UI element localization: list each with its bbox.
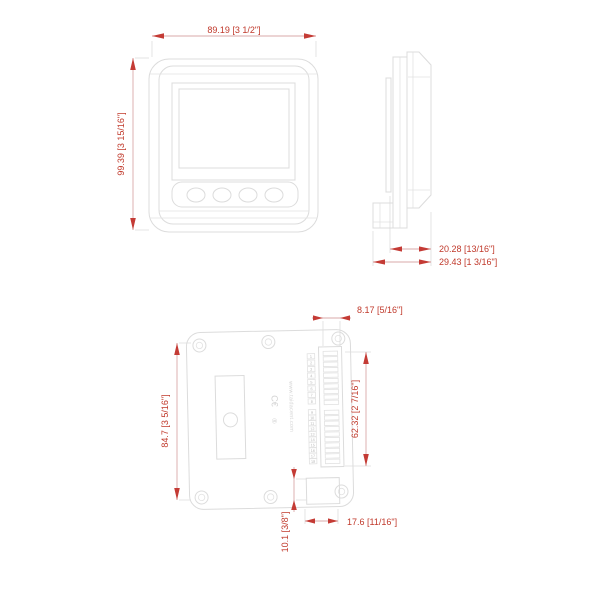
arrow-up-icon [363,352,369,364]
arrow-right-icon [419,246,431,251]
terminal-height-label: 62.32 [2 7/16"] [350,380,360,438]
side-depth-behind-label: 20.28 [13/16"] [439,244,495,254]
terminal-number: 10 [310,416,314,420]
dim-connector-height: 10.1 [3/8"] [280,467,307,552]
terminal-slot [325,432,340,437]
arrow-down-icon [291,469,297,479]
terminal-number: 8 [311,400,313,404]
terminal-slot [325,459,340,464]
arrow-up-icon [130,58,136,70]
terminal-slot [324,378,339,383]
technical-drawing-canvas: 89.19 [3 1/2"] 99.39 [3 15/16"] 20.28 [1… [0,0,600,600]
terminal-number: 16 [311,449,315,453]
drawing-svg: 89.19 [3 1/2"] 99.39 [3 15/16"] 20.28 [1… [0,0,600,600]
terminal-number: 14 [310,438,314,442]
terminal-block [318,346,344,466]
arrow-up-icon [291,500,297,510]
button-panel [172,182,298,207]
terminal-slot [324,389,339,394]
terminal-slot [324,410,339,415]
terminal-number: 4 [310,374,312,378]
terminal-number: 3 [310,368,312,372]
terminal-slot [324,373,339,378]
arrow-right-icon [313,315,323,320]
button-1 [187,188,205,202]
terminal-slot [325,448,340,453]
display-window-frame [172,83,295,180]
display-screen [179,89,289,168]
terminal-slot [323,357,338,362]
button-3 [239,188,257,202]
dim-back-height: 84.7 [3 5/16"] [160,343,191,500]
terminal-number: 18 [311,460,315,464]
front-bezel [159,66,309,224]
arrow-right-icon [304,33,316,39]
arrow-left-icon [305,518,315,523]
side-view [373,52,431,228]
arrow-down-icon [130,218,136,230]
terminal-slot [325,426,340,431]
arrow-left-icon [340,315,350,320]
front-width-label: 89.19 [3 1/2"] [207,25,260,35]
terminal-number: 11 [310,422,314,426]
terminal-slot [325,421,340,426]
dim-front-height: 99.39 [3 15/16"] [116,58,149,230]
terminal-slot [324,395,339,400]
dim-front-width: 89.19 [3 1/2"] [152,25,316,57]
button-4 [265,188,283,202]
terminal-slot [324,384,339,389]
dim-side-depth-behind: 20.28 [13/16"] [390,196,495,266]
terminal-number: 7 [311,393,313,397]
terminal-slot [325,443,340,448]
arrow-right-icon [419,259,431,264]
side-mounting-flange [386,78,391,192]
terminal-slot [325,454,340,459]
arrow-left-icon [152,33,164,39]
dim-terminal-height: 62.32 [2 7/16"] [345,352,371,466]
connector-height-label: 10.1 [3/8"] [280,512,290,553]
arrow-up-icon [174,343,180,355]
terminal-number: 12 [310,427,314,431]
arrow-down-icon [174,488,180,500]
terminal-number: 1 [310,355,312,359]
terminal-number: 15 [311,443,315,447]
terminal-slot [323,362,338,367]
terminal-number: 13 [310,433,314,437]
arrow-left-icon [373,259,385,264]
side-depth-total-label: 29.43 [1 3/16"] [439,257,497,267]
back-view: www.taidacent.com C€ ® 12345678910111213… [186,329,354,509]
back-height-label: 84.7 [3 5/16"] [160,394,170,447]
ce-mark: C€ [269,395,279,407]
back-label-recess [215,376,246,460]
arrow-right-icon [328,518,338,523]
terminal-slot [324,400,339,405]
terminal-number: 5 [310,381,312,385]
dim-connector-width: 17.6 [11/16"] [305,509,397,527]
front-view [149,59,318,232]
terminal-number: 2 [310,361,312,365]
button-2 [213,188,231,202]
terminal-slot [323,351,338,356]
terminal-slot [325,437,340,442]
arrow-left-icon [390,246,402,251]
arrow-down-icon [363,454,369,466]
terminal-block-details: 123456789101112131415161718 [307,351,340,464]
dim-terminal-offset: 8.17 [5/16"] [312,305,403,346]
terminal-slot [323,367,338,372]
terminal-number: 9 [311,411,313,415]
terminal-number: 6 [310,387,312,391]
terminal-slot [324,416,339,421]
connector-width-label: 17.6 [11/16"] [347,517,397,527]
terminal-number: 17 [311,454,315,458]
front-height-label: 99.39 [3 15/16"] [116,112,126,175]
watermark-text: www.taidacent.com [287,380,294,432]
registered-mark: ® [270,418,278,424]
back-recess-hole [223,413,237,427]
terminal-offset-label: 8.17 [5/16"] [357,305,403,315]
side-bezel-profile [407,52,431,208]
